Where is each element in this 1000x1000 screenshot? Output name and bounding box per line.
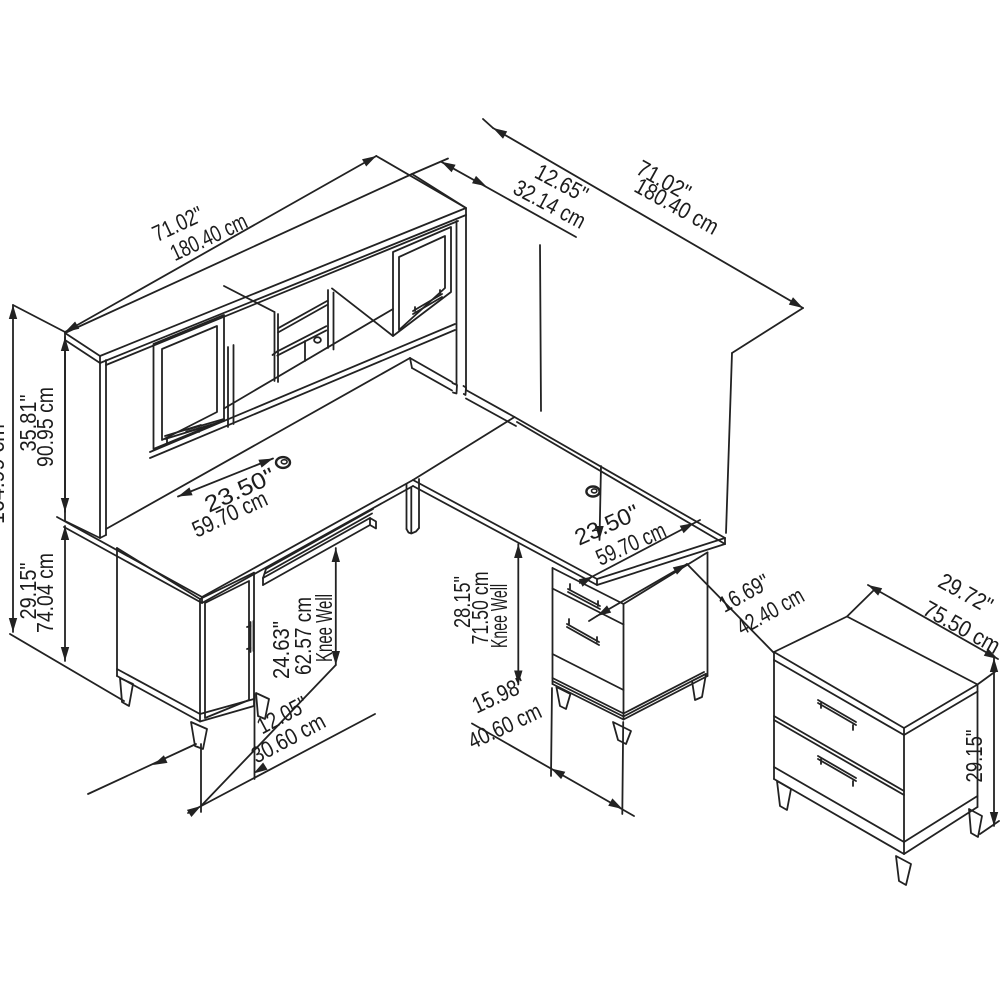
svg-text:90.95 cm: 90.95 cm <box>32 387 58 467</box>
svg-text:74.04 cm: 74.04 cm <box>32 553 58 633</box>
svg-text:29.15": 29.15" <box>961 730 987 783</box>
svg-text:164.99 cm: 164.99 cm <box>0 424 9 524</box>
svg-text:Knee Well: Knee Well <box>486 584 512 648</box>
svg-text:Knee Well: Knee Well <box>311 594 337 662</box>
